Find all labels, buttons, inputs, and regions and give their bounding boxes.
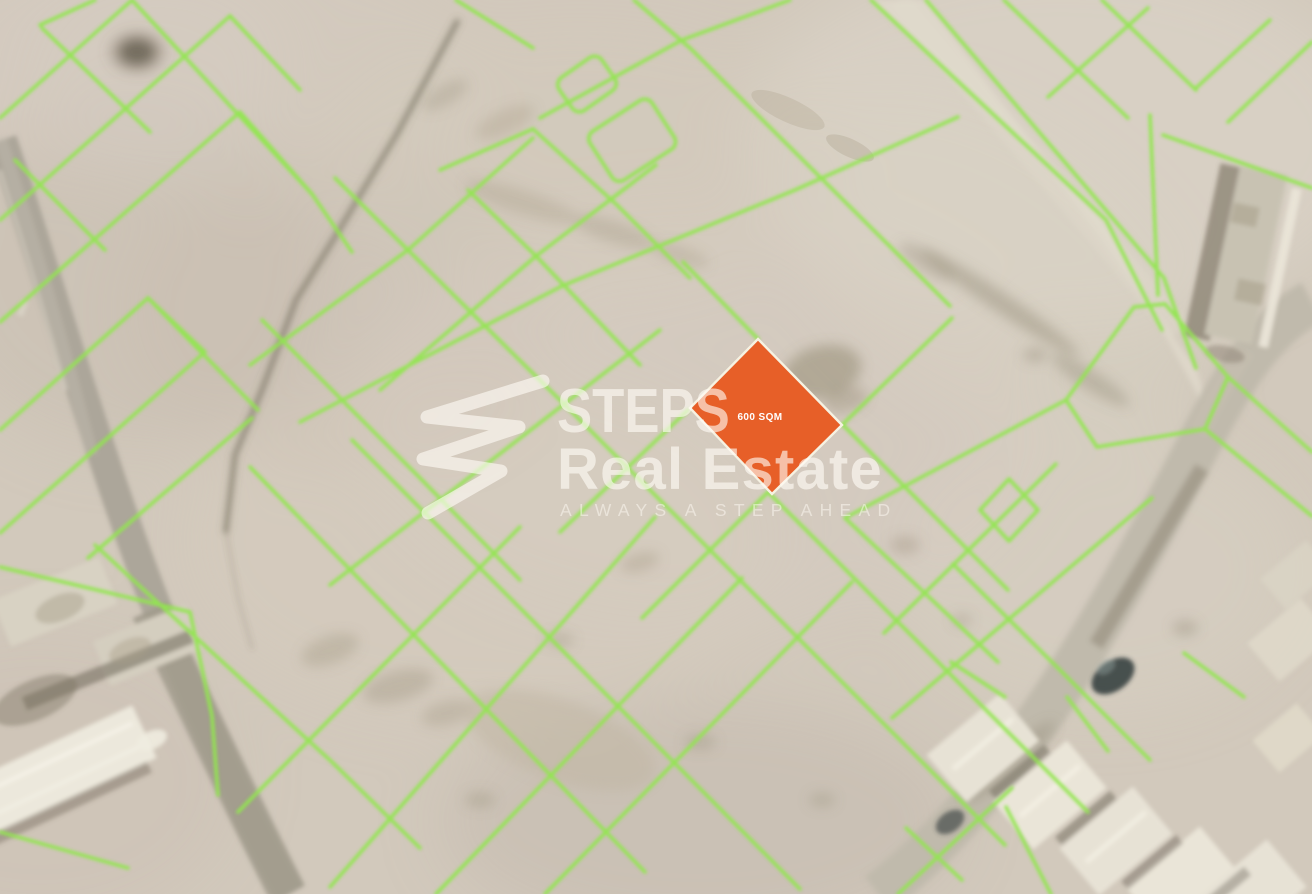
svg-text:600 SQM: 600 SQM: [737, 412, 782, 423]
svg-text:Real Estate: Real Estate: [557, 437, 883, 502]
svg-text:STEPS: STEPS: [557, 377, 730, 446]
svg-text:ALWAYS A STEP AHEAD: ALWAYS A STEP AHEAD: [560, 500, 897, 520]
